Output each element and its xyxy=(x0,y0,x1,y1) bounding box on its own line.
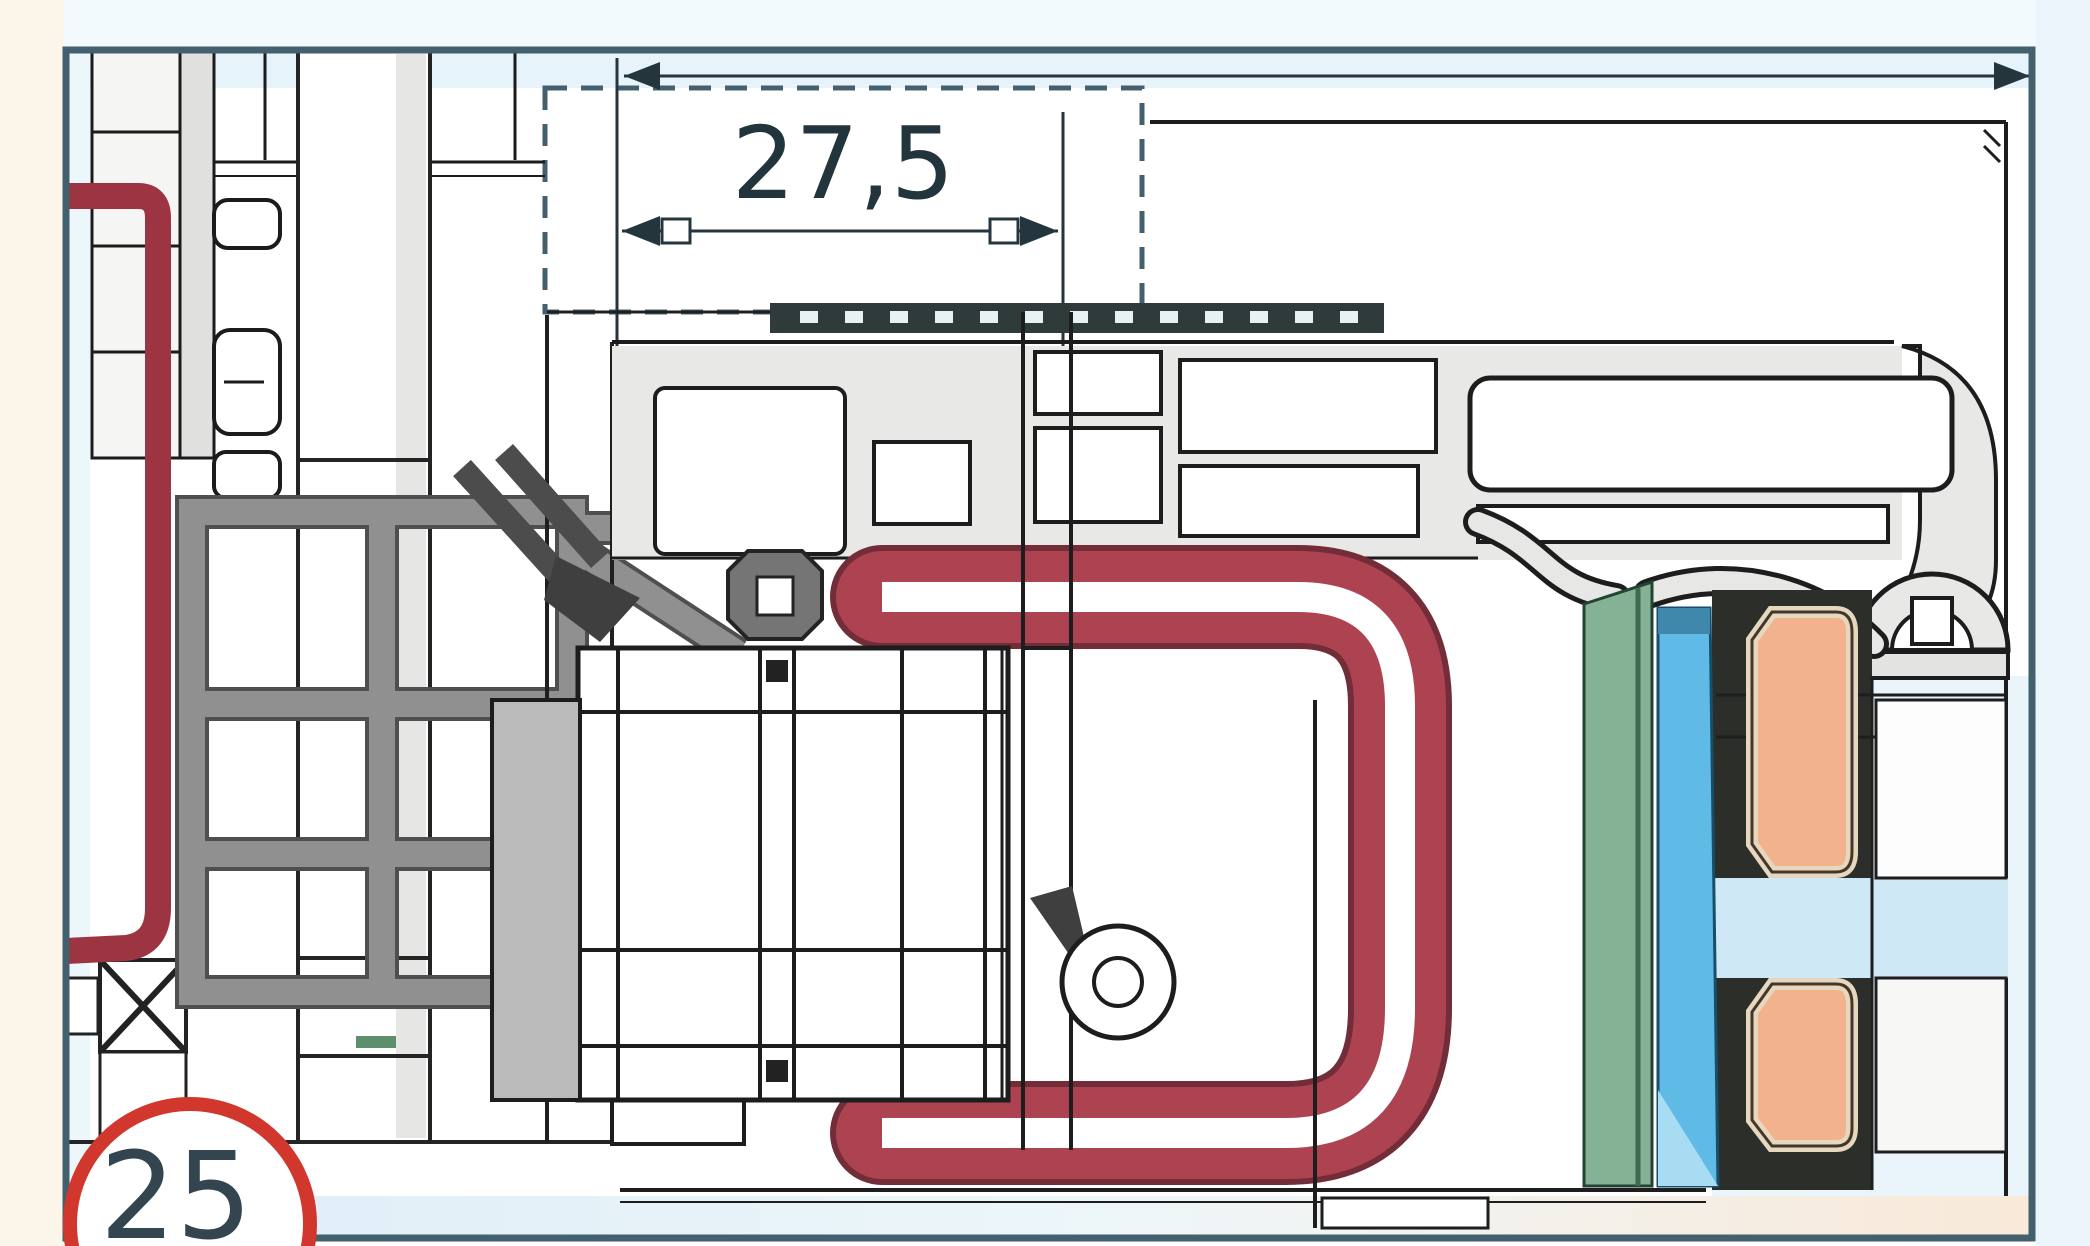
sash-chamber xyxy=(1876,700,2006,878)
sash-chamber xyxy=(1180,466,1418,536)
technical-drawing-window-section: 27,5 25 xyxy=(0,0,2090,1246)
spacer-lower xyxy=(1752,984,1852,1146)
spacer-upper xyxy=(1752,612,1852,872)
cavity-band xyxy=(1712,878,2008,978)
glass-pane xyxy=(1658,608,1718,1186)
sash-chamber-large xyxy=(1470,378,1952,490)
frame-hook-upper xyxy=(214,200,280,248)
drawing-canvas: 27,5 25 xyxy=(0,0,2090,1246)
sash-chamber xyxy=(1478,506,1888,542)
glazing-tape-green xyxy=(1584,582,1652,1186)
sash-chamber xyxy=(1876,978,2006,1152)
small-green-seal xyxy=(356,1036,396,1048)
sash-chamber xyxy=(655,388,845,554)
dimension-value: 27,5 xyxy=(732,105,955,222)
sash-chamber xyxy=(1035,428,1161,522)
frame-hook-lower xyxy=(214,452,280,498)
keeper-block xyxy=(874,442,970,524)
sash-chamber xyxy=(1035,352,1161,414)
balloon-number: 25 xyxy=(100,1128,253,1246)
sash-chamber xyxy=(1180,360,1436,452)
